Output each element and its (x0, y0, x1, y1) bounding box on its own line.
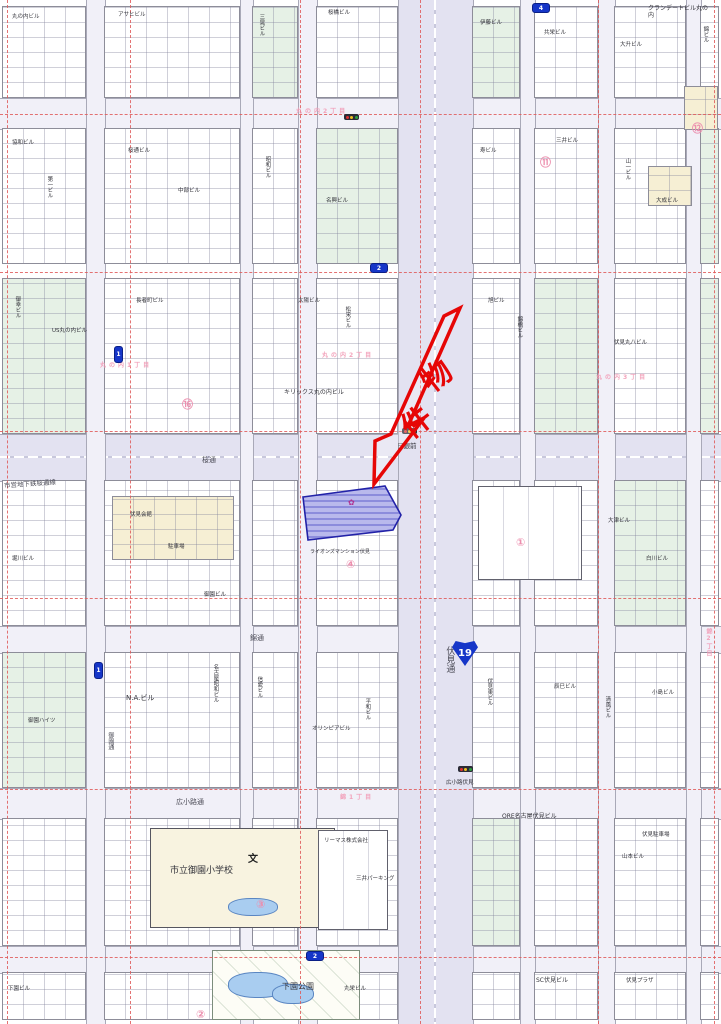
arrow-outline (374, 308, 460, 484)
map-canvas: ✿ 丸の内2丁目丸の内1丁目丸の内2丁目丸の内3丁目錦1丁目錦2丁目伏見通市営地… (0, 0, 721, 1024)
property-arrow (0, 0, 721, 1024)
